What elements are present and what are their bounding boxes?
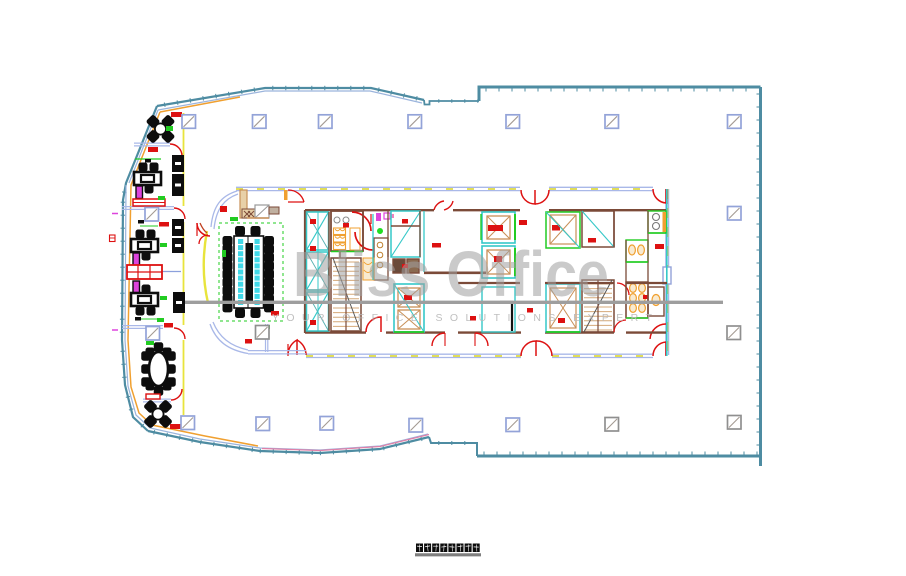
svg-text:YOUR OFFICE SOLUTIONS EXPERT: YOUR OFFICE SOLUTIONS EXPERT (272, 312, 659, 324)
svg-text:Bliss Office: Bliss Office (293, 238, 609, 310)
